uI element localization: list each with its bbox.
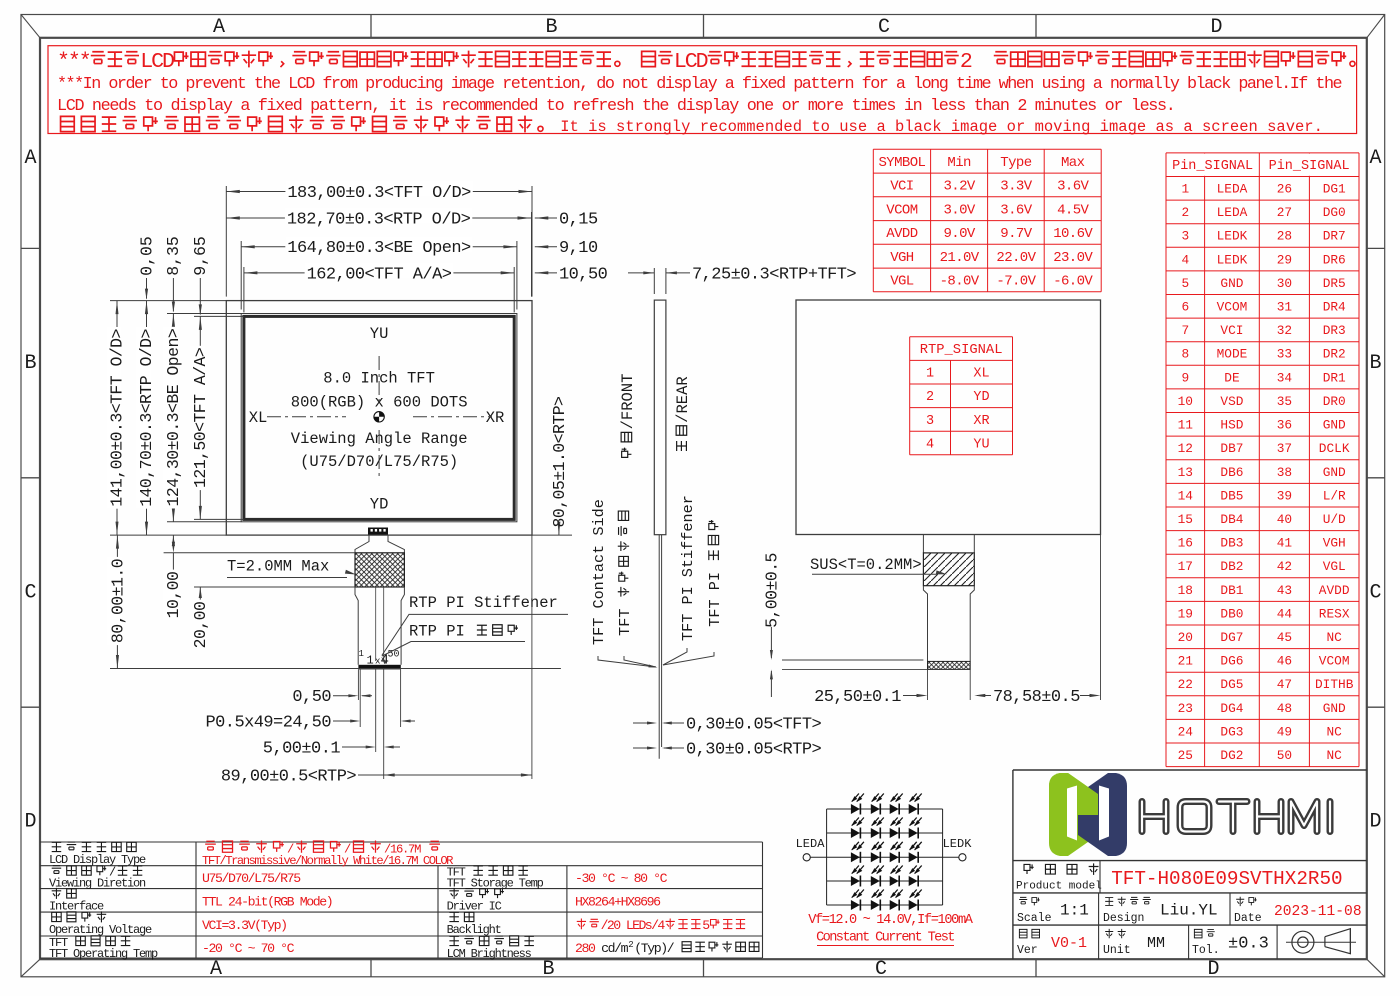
- svg-text:MM: MM: [1147, 935, 1165, 952]
- svg-text:GND: GND: [1220, 276, 1243, 291]
- svg-text:NC: NC: [1327, 724, 1343, 739]
- svg-text:D: D: [1370, 811, 1382, 834]
- svg-text:1:1: 1:1: [1060, 901, 1089, 919]
- svg-text:B: B: [543, 958, 555, 981]
- svg-text:22: 22: [1178, 677, 1193, 692]
- svg-text:TFT PI Stiffener: TFT PI Stiffener: [679, 495, 697, 641]
- svg-text:1: 1: [926, 367, 934, 382]
- svg-text:DR7: DR7: [1323, 229, 1346, 244]
- svg-text:LEDK: LEDK: [943, 837, 973, 851]
- svg-text:17: 17: [1178, 559, 1193, 574]
- svg-text:DR6: DR6: [1323, 252, 1346, 267]
- svg-text:3: 3: [1182, 229, 1190, 244]
- svg-text:121,50<TFT A/A>: 121,50<TFT A/A>: [191, 348, 210, 488]
- svg-text:3.2V: 3.2V: [944, 179, 976, 195]
- svg-text:D: D: [1211, 16, 1223, 39]
- svg-text:Backlight: Backlight: [447, 923, 501, 937]
- svg-text:DB2: DB2: [1220, 559, 1243, 574]
- svg-text:20,00: 20,00: [191, 602, 210, 649]
- svg-text:4.5V: 4.5V: [1057, 202, 1089, 218]
- svg-text:C: C: [1370, 581, 1382, 604]
- svg-text:10.6V: 10.6V: [1053, 226, 1093, 242]
- svg-text:3.6V: 3.6V: [1000, 202, 1032, 218]
- svg-text:80,05±1.0<RTP>: 80,05±1.0<RTP>: [550, 397, 569, 528]
- svg-text:141,00±0.3<TFT O/D>: 141,00±0.3<TFT O/D>: [108, 329, 127, 507]
- svg-text:9,65: 9,65: [191, 236, 210, 276]
- svg-text:Date: Date: [1234, 912, 1262, 925]
- svg-text:YD: YD: [973, 390, 989, 405]
- svg-text:124,30±0.3<BE Open>: 124,30±0.3<BE Open>: [164, 329, 183, 507]
- svg-text:2: 2: [960, 50, 972, 74]
- svg-text:L/R: L/R: [1323, 488, 1346, 503]
- svg-text:5: 5: [1182, 276, 1190, 291]
- svg-text:DB7: DB7: [1220, 441, 1243, 456]
- svg-text:41: 41: [1277, 536, 1293, 551]
- svg-text:VCI: VCI: [1220, 323, 1243, 338]
- svg-text:24: 24: [1178, 724, 1194, 739]
- svg-text:33: 33: [1277, 347, 1292, 362]
- svg-text:C: C: [25, 581, 37, 604]
- svg-text:LEDA: LEDA: [1217, 205, 1248, 220]
- svg-text:C: C: [878, 16, 890, 39]
- svg-text:6: 6: [1182, 300, 1190, 315]
- svg-text:SYMBOL: SYMBOL: [879, 155, 926, 171]
- svg-text:164,80±0.3<BE Open>: 164,80±0.3<BE Open>: [287, 239, 471, 258]
- svg-text:***: ***: [57, 50, 90, 74]
- svg-text:/FRONT: /FRONT: [619, 374, 637, 430]
- svg-text:NC: NC: [1327, 630, 1343, 645]
- svg-text:29: 29: [1277, 252, 1292, 267]
- svg-text:Product model: Product model: [1016, 881, 1102, 893]
- svg-text:182,70±0.3<RTP O/D>: 182,70±0.3<RTP O/D>: [287, 210, 471, 229]
- svg-text:VSD: VSD: [1220, 394, 1243, 409]
- svg-text:DB5: DB5: [1220, 488, 1243, 503]
- svg-text:B: B: [1370, 352, 1382, 375]
- svg-text:Viewing Diretion: Viewing Diretion: [49, 877, 146, 891]
- svg-text:Max: Max: [1061, 155, 1085, 171]
- svg-text:DR2: DR2: [1323, 347, 1346, 362]
- svg-text:Unit: Unit: [1103, 944, 1131, 957]
- svg-text:2: 2: [1182, 205, 1190, 220]
- svg-text:GND: GND: [1323, 418, 1346, 433]
- svg-text:89,00±0.5<RTP>: 89,00±0.5<RTP>: [221, 767, 356, 786]
- svg-text:VCOM: VCOM: [1217, 300, 1248, 315]
- svg-text:13: 13: [1178, 465, 1193, 480]
- svg-text:A: A: [25, 147, 37, 170]
- svg-text:19: 19: [1178, 606, 1193, 621]
- svg-text:Design: Design: [1103, 912, 1144, 925]
- svg-text:3: 3: [926, 414, 934, 429]
- svg-text:RTP PI Stiffener: RTP PI Stiffener: [409, 594, 558, 612]
- svg-text:DE: DE: [1224, 370, 1240, 385]
- svg-text:34: 34: [1277, 370, 1293, 385]
- svg-text:78,58±0.5: 78,58±0.5: [993, 688, 1080, 707]
- svg-text:32: 32: [1277, 323, 1292, 338]
- svg-text:SUS<T=0.2MM>: SUS<T=0.2MM>: [810, 556, 922, 574]
- svg-text:0,30±0.05<TFT>: 0,30±0.05<TFT>: [686, 715, 821, 734]
- svg-text:Scale: Scale: [1017, 912, 1052, 925]
- svg-text:Type: Type: [1000, 155, 1031, 171]
- svg-text:LCD: LCD: [674, 50, 708, 74]
- svg-text:Vf=12.0 ~ 14.0V,If=100mA: Vf=12.0 ~ 14.0V,If=100mA: [808, 913, 974, 928]
- svg-text:Constant Current Test: Constant Current Test: [816, 931, 954, 946]
- svg-text:DG4: DG4: [1220, 701, 1243, 716]
- svg-text:Liu.YL: Liu.YL: [1160, 901, 1218, 919]
- svg-text:DG6: DG6: [1220, 654, 1243, 669]
- svg-text:Operating Voltage: Operating Voltage: [49, 923, 152, 937]
- svg-text:11: 11: [1178, 418, 1194, 433]
- svg-text:27: 27: [1277, 205, 1292, 220]
- svg-text:GND: GND: [1323, 465, 1346, 480]
- svg-text:DG0: DG0: [1323, 205, 1346, 220]
- svg-text:DB1: DB1: [1220, 583, 1243, 598]
- svg-text:P0.5x49=24,50: P0.5x49=24,50: [206, 713, 332, 732]
- svg-text:A: A: [213, 16, 225, 39]
- svg-text:23: 23: [1178, 701, 1193, 716]
- svg-text:B: B: [546, 16, 558, 39]
- svg-text:2: 2: [628, 940, 633, 950]
- svg-text:XL: XL: [249, 409, 268, 427]
- svg-text:VGH: VGH: [1323, 536, 1346, 551]
- svg-text:LCD needs to display a fixed p: LCD needs to display a fixed pattern, it…: [57, 97, 1175, 116]
- svg-text:VGH: VGH: [890, 250, 914, 266]
- svg-text:TTL 24-bit(RGB Mode): TTL 24-bit(RGB Mode): [202, 894, 332, 909]
- svg-text:0,05: 0,05: [137, 236, 156, 276]
- svg-text:LCD: LCD: [140, 50, 174, 74]
- svg-text:LEDA: LEDA: [796, 837, 826, 851]
- svg-text:-6.0V: -6.0V: [1053, 274, 1093, 290]
- svg-text:XR: XR: [486, 409, 505, 427]
- svg-text:-30 °C ~ 80 °C: -30 °C ~ 80 °C: [575, 871, 668, 886]
- svg-text:43: 43: [1277, 583, 1292, 598]
- svg-text:-7.0V: -7.0V: [996, 274, 1036, 290]
- svg-text:49: 49: [1277, 724, 1292, 739]
- svg-text:***In order to prevent the LCD: ***In order to prevent the LCD from prod…: [57, 75, 1341, 94]
- svg-text:7: 7: [1182, 323, 1190, 338]
- svg-text:DR0: DR0: [1323, 394, 1346, 409]
- svg-text:Tol.: Tol.: [1192, 944, 1220, 957]
- svg-text:21: 21: [1178, 654, 1194, 669]
- svg-text:10,00: 10,00: [164, 572, 183, 619]
- svg-text:3.3V: 3.3V: [1000, 179, 1032, 195]
- svg-text:1: 1: [367, 654, 374, 668]
- svg-text:2: 2: [926, 390, 934, 405]
- svg-text:VGL: VGL: [890, 274, 914, 290]
- svg-text:RTP_SIGNAL: RTP_SIGNAL: [920, 343, 1003, 358]
- svg-text:TFT Operating Temp: TFT Operating Temp: [49, 947, 158, 961]
- svg-text:22.0V: 22.0V: [996, 250, 1036, 266]
- svg-text:9.0V: 9.0V: [944, 226, 976, 242]
- svg-text:RESX: RESX: [1319, 606, 1350, 621]
- svg-text:DG1: DG1: [1323, 182, 1346, 197]
- svg-text:D: D: [25, 811, 37, 834]
- svg-text:DB3: DB3: [1220, 536, 1243, 551]
- svg-text:±0.3: ±0.3: [1228, 935, 1269, 954]
- svg-text:5,00±0.1: 5,00±0.1: [263, 739, 341, 758]
- svg-text:5,00±0.5: 5,00±0.5: [763, 553, 782, 628]
- svg-text:YU: YU: [973, 437, 989, 452]
- svg-text:DR5: DR5: [1323, 276, 1346, 291]
- svg-text:800(RGB) x 600 DOTS: 800(RGB) x 600 DOTS: [291, 394, 468, 412]
- svg-text:46: 46: [1277, 654, 1292, 669]
- svg-text:8,35: 8,35: [164, 236, 183, 276]
- svg-text:1: 1: [1182, 182, 1190, 197]
- svg-text:Pin_SIGNAL: Pin_SIGNAL: [1172, 159, 1253, 174]
- svg-text:183,00±0.3<TFT O/D>: 183,00±0.3<TFT O/D>: [287, 184, 471, 203]
- svg-text:/20 LEDs/4: /20 LEDs/4: [601, 918, 666, 933]
- svg-text:30: 30: [1277, 276, 1292, 291]
- svg-text:21.0V: 21.0V: [940, 250, 980, 266]
- svg-text:80,00±1.0: 80,00±1.0: [109, 559, 128, 643]
- svg-text:Driver IC: Driver IC: [447, 900, 502, 914]
- svg-text:It is strongly recommended to: It is strongly recommended to use a blac…: [560, 118, 1323, 136]
- svg-text:39: 39: [1277, 488, 1292, 503]
- svg-text:Min: Min: [947, 155, 971, 171]
- svg-text:9.7V: 9.7V: [1000, 226, 1032, 242]
- svg-text:DCLK: DCLK: [1319, 441, 1350, 456]
- svg-text:MODE: MODE: [1217, 347, 1248, 362]
- svg-text:U/D: U/D: [1323, 512, 1346, 527]
- svg-text:/REAR: /REAR: [674, 376, 692, 423]
- svg-text:-8.0V: -8.0V: [940, 274, 980, 290]
- svg-text:31: 31: [1277, 300, 1293, 315]
- svg-text:A: A: [210, 958, 222, 981]
- svg-text:14: 14: [1178, 488, 1194, 503]
- svg-text:36: 36: [1277, 418, 1292, 433]
- svg-text:8: 8: [1182, 347, 1190, 362]
- svg-text:42: 42: [1277, 559, 1292, 574]
- svg-text:45: 45: [1277, 630, 1292, 645]
- svg-text:TFT/Transmissive/Normally Whit: TFT/Transmissive/Normally White/16.7M CO…: [202, 854, 453, 868]
- svg-text:YU: YU: [370, 325, 389, 343]
- svg-text:50: 50: [388, 650, 400, 661]
- svg-text:DB0: DB0: [1220, 606, 1243, 621]
- svg-text:V0-1: V0-1: [1051, 935, 1087, 952]
- svg-text:B: B: [25, 352, 37, 375]
- svg-text:16: 16: [1178, 536, 1193, 551]
- svg-text:XL: XL: [973, 367, 989, 382]
- svg-text:162,00<TFT A/A>: 162,00<TFT A/A>: [307, 265, 452, 284]
- svg-text:AVDD: AVDD: [886, 226, 917, 242]
- svg-text:47: 47: [1277, 677, 1292, 692]
- svg-text:40: 40: [1277, 512, 1292, 527]
- svg-text:9,10: 9,10: [559, 239, 598, 258]
- svg-text:AVDD: AVDD: [1319, 583, 1350, 598]
- svg-text:28: 28: [1277, 229, 1292, 244]
- svg-text:44: 44: [1277, 606, 1293, 621]
- svg-text:LCM Brightness: LCM Brightness: [447, 947, 532, 961]
- svg-text:48: 48: [1277, 701, 1292, 716]
- svg-text:7,25±0.3<RTP+TFT>: 7,25±0.3<RTP+TFT>: [692, 265, 856, 284]
- svg-text:HSD: HSD: [1220, 418, 1243, 433]
- svg-text:LEDA: LEDA: [1217, 182, 1248, 197]
- svg-text:0,15: 0,15: [559, 210, 598, 229]
- svg-text:35: 35: [1277, 394, 1292, 409]
- svg-text:25: 25: [1178, 748, 1193, 763]
- svg-text:37: 37: [1277, 441, 1292, 456]
- svg-text:VCI=3.3V(Typ): VCI=3.3V(Typ): [202, 918, 287, 933]
- svg-text:1: 1: [359, 649, 364, 659]
- svg-text:20: 20: [1178, 630, 1193, 645]
- svg-text:26: 26: [1277, 182, 1292, 197]
- svg-text:C: C: [875, 958, 887, 981]
- svg-text:12: 12: [1178, 441, 1193, 456]
- svg-text:A: A: [1370, 147, 1382, 170]
- svg-text:10,50: 10,50: [559, 265, 608, 284]
- svg-text:4: 4: [1182, 252, 1190, 267]
- svg-text:VCOM: VCOM: [1319, 654, 1350, 669]
- svg-text:3.0V: 3.0V: [944, 202, 976, 218]
- svg-text:DG2: DG2: [1220, 748, 1243, 763]
- svg-text:23.0V: 23.0V: [1053, 250, 1093, 266]
- svg-text:D: D: [1208, 958, 1220, 981]
- svg-text:280: 280: [575, 941, 596, 956]
- svg-text:Pin_SIGNAL: Pin_SIGNAL: [1269, 159, 1350, 174]
- svg-text:NC: NC: [1327, 748, 1343, 763]
- svg-text:140,70±0.3<RTP O/D>: 140,70±0.3<RTP O/D>: [137, 329, 156, 507]
- svg-text:RTP PI: RTP PI: [409, 623, 465, 641]
- svg-text:0,30±0.05<RTP>: 0,30±0.05<RTP>: [686, 740, 821, 759]
- svg-text:DB4: DB4: [1220, 512, 1243, 527]
- svg-text:0,50: 0,50: [292, 688, 331, 707]
- svg-text:10: 10: [1178, 394, 1193, 409]
- svg-text:DITHB: DITHB: [1315, 677, 1354, 692]
- svg-text:25,50±0.1: 25,50±0.1: [814, 688, 901, 707]
- svg-text:38: 38: [1277, 465, 1292, 480]
- svg-text:50: 50: [1277, 748, 1292, 763]
- svg-text:18: 18: [1178, 583, 1193, 598]
- svg-text:2023-11-08: 2023-11-08: [1274, 904, 1362, 920]
- svg-text:XR: XR: [973, 414, 989, 429]
- svg-text:VCI: VCI: [890, 179, 913, 195]
- svg-text:DG3: DG3: [1220, 724, 1243, 739]
- svg-text:VGL: VGL: [1323, 559, 1346, 574]
- svg-text:YD: YD: [370, 496, 389, 514]
- svg-text:15: 15: [1178, 512, 1193, 527]
- svg-text:4: 4: [926, 437, 934, 452]
- svg-text:Ver: Ver: [1017, 944, 1038, 957]
- svg-text:VCOM: VCOM: [886, 202, 917, 218]
- svg-text:TFT PI: TFT PI: [706, 572, 724, 627]
- svg-text:-20 °C ~ 70 °C: -20 °C ~ 70 °C: [202, 941, 295, 956]
- svg-text:DG5: DG5: [1220, 677, 1243, 692]
- svg-text:DG7: DG7: [1220, 630, 1243, 645]
- svg-text:cd/m: cd/m: [601, 941, 629, 956]
- svg-text:LCD Display Type: LCD Display Type: [49, 853, 146, 867]
- svg-text:DR1: DR1: [1323, 370, 1346, 385]
- svg-text:T=2.0MM Max: T=2.0MM Max: [227, 558, 329, 576]
- svg-text:TFT: TFT: [616, 608, 634, 635]
- svg-text:3.6V: 3.6V: [1057, 179, 1089, 195]
- svg-text:(Typ)/: (Typ)/: [634, 941, 675, 956]
- svg-text:U75/D70/L75/R75: U75/D70/L75/R75: [202, 871, 301, 886]
- svg-text:DR4: DR4: [1323, 300, 1346, 315]
- svg-text:DR3: DR3: [1323, 323, 1346, 338]
- svg-text:GND: GND: [1323, 701, 1346, 716]
- svg-text:TFT-H080E09SVTHX2R50: TFT-H080E09SVTHX2R50: [1111, 868, 1342, 890]
- svg-text:HX8264+HX8696: HX8264+HX8696: [575, 894, 661, 909]
- svg-text:TFT Contact Side: TFT Contact Side: [590, 499, 608, 645]
- svg-text:LEDK: LEDK: [1217, 252, 1248, 267]
- svg-text:DB6: DB6: [1220, 465, 1243, 480]
- svg-text:LEDK: LEDK: [1217, 229, 1248, 244]
- svg-text:9: 9: [1182, 370, 1190, 385]
